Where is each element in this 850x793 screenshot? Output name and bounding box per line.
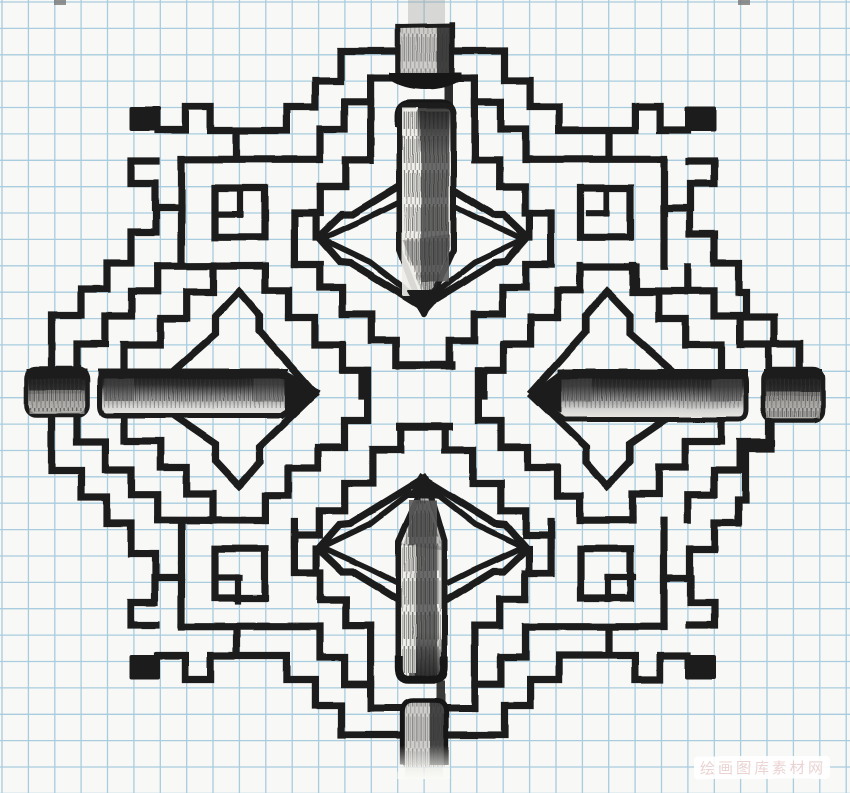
svg-text:绘画图库素材网: 绘画图库素材网 [700, 760, 826, 777]
